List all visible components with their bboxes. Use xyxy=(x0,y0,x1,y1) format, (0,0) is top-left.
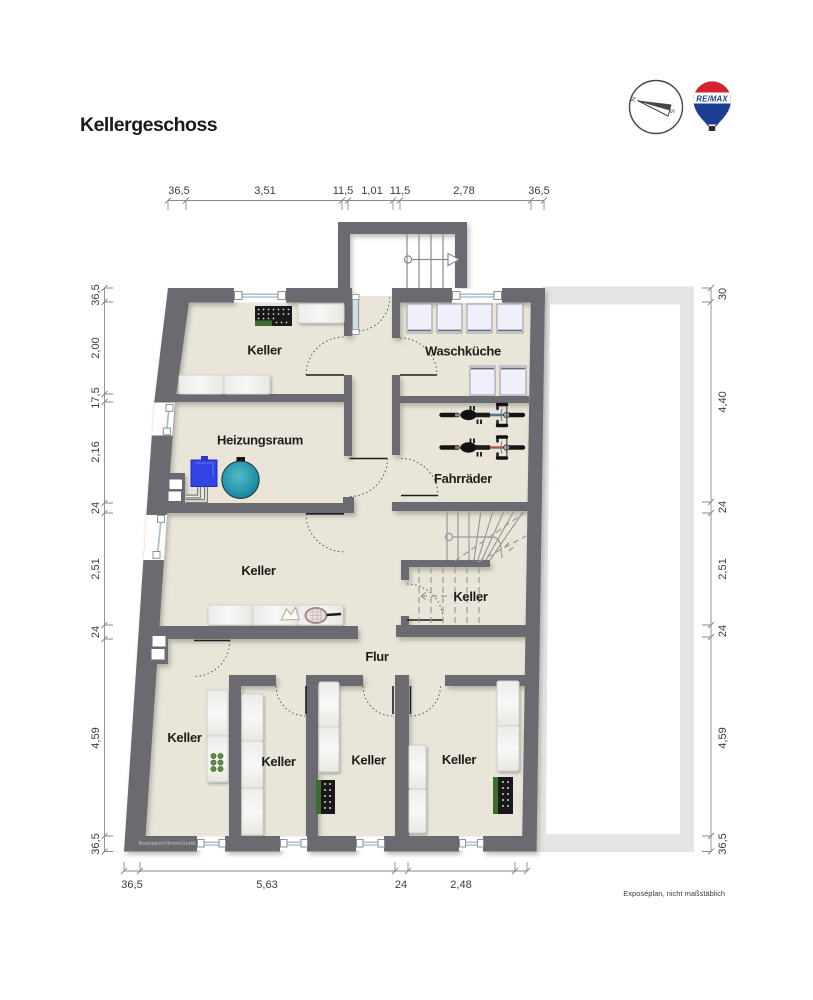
svg-text:Keller: Keller xyxy=(442,752,477,767)
svg-text:Keller: Keller xyxy=(351,753,386,768)
svg-text:24: 24 xyxy=(717,625,729,637)
svg-text:4,40: 4,40 xyxy=(717,391,729,412)
svg-text:Exposéplan, nicht maßstäblich: Exposéplan, nicht maßstäblich xyxy=(623,889,725,898)
svg-text:2,48: 2,48 xyxy=(450,879,471,891)
svg-text:Illustration©ImmoGrafik: Illustration©ImmoGrafik xyxy=(139,840,197,847)
svg-text:4,59: 4,59 xyxy=(90,727,102,748)
svg-text:36,5: 36,5 xyxy=(717,833,729,854)
svg-text:Keller: Keller xyxy=(261,754,296,769)
svg-text:2,00: 2,00 xyxy=(90,337,102,358)
svg-text:11,5: 11,5 xyxy=(390,185,411,197)
svg-text:Kellergeschoss: Kellergeschoss xyxy=(80,114,218,136)
svg-text:36,5: 36,5 xyxy=(90,284,102,305)
svg-text:RE/MAX: RE/MAX xyxy=(696,95,728,104)
svg-text:5,63: 5,63 xyxy=(256,879,277,891)
svg-text:4,59: 4,59 xyxy=(717,727,729,748)
svg-text:36,5: 36,5 xyxy=(528,185,549,197)
svg-text:Fahrräder: Fahrräder xyxy=(434,471,492,486)
svg-text:2,51: 2,51 xyxy=(90,558,102,579)
svg-text:2,51: 2,51 xyxy=(717,558,729,579)
svg-text:Keller: Keller xyxy=(247,343,282,358)
svg-text:24: 24 xyxy=(90,502,102,514)
svg-text:36,5: 36,5 xyxy=(121,879,142,891)
svg-text:36,5: 36,5 xyxy=(90,833,102,854)
svg-text:24: 24 xyxy=(717,501,729,513)
svg-text:30: 30 xyxy=(717,288,729,300)
svg-text:3,51: 3,51 xyxy=(254,185,275,197)
svg-text:Keller: Keller xyxy=(167,730,202,745)
svg-text:36,5: 36,5 xyxy=(168,185,189,197)
svg-text:17,5: 17,5 xyxy=(90,387,102,408)
svg-text:2,78: 2,78 xyxy=(453,185,474,197)
svg-text:2,16: 2,16 xyxy=(90,441,102,462)
svg-text:24: 24 xyxy=(90,626,102,638)
svg-text:Flur: Flur xyxy=(365,649,389,664)
svg-text:24: 24 xyxy=(395,879,407,891)
svg-text:Keller: Keller xyxy=(453,589,488,604)
svg-text:Keller: Keller xyxy=(241,563,276,578)
svg-text:Heizungsraum: Heizungsraum xyxy=(217,433,303,448)
svg-text:1,01: 1,01 xyxy=(361,185,382,197)
svg-text:Waschküche: Waschküche xyxy=(425,344,501,359)
svg-text:11,5: 11,5 xyxy=(333,185,354,197)
